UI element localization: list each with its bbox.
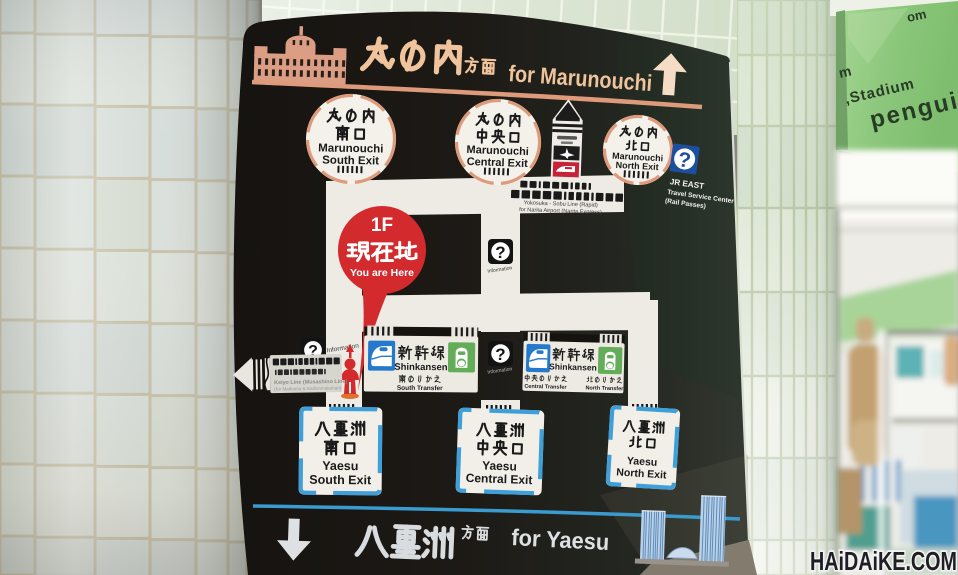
svg-text:South Exit: South Exit — [309, 473, 372, 488]
svg-text:South Transfer: South Transfer — [397, 385, 443, 392]
svg-text:You are Here: You are Here — [350, 267, 414, 279]
svg-text:South Exit: South Exit — [322, 155, 379, 168]
svg-text:Shinkansen: Shinkansen — [549, 361, 597, 372]
svg-text:Central Exit: Central Exit — [467, 156, 529, 170]
svg-text:Marunouchi: Marunouchi — [318, 142, 383, 155]
svg-text:?: ? — [495, 243, 505, 262]
svg-text:for Yaesu: for Yaesu — [511, 524, 610, 555]
svg-text:?: ? — [495, 345, 505, 364]
svg-text:Yaesu: Yaesu — [322, 459, 358, 473]
svg-text:Shinkansen: Shinkansen — [394, 362, 448, 373]
svg-text:HAiDAiKE.COM: HAiDAiKE.COM — [810, 546, 957, 575]
svg-text:1F: 1F — [371, 215, 393, 236]
svg-text:North Transfer: North Transfer — [585, 385, 624, 392]
svg-text:Central Transfer: Central Transfer — [524, 384, 567, 391]
svg-text:Central Exit: Central Exit — [465, 471, 532, 487]
